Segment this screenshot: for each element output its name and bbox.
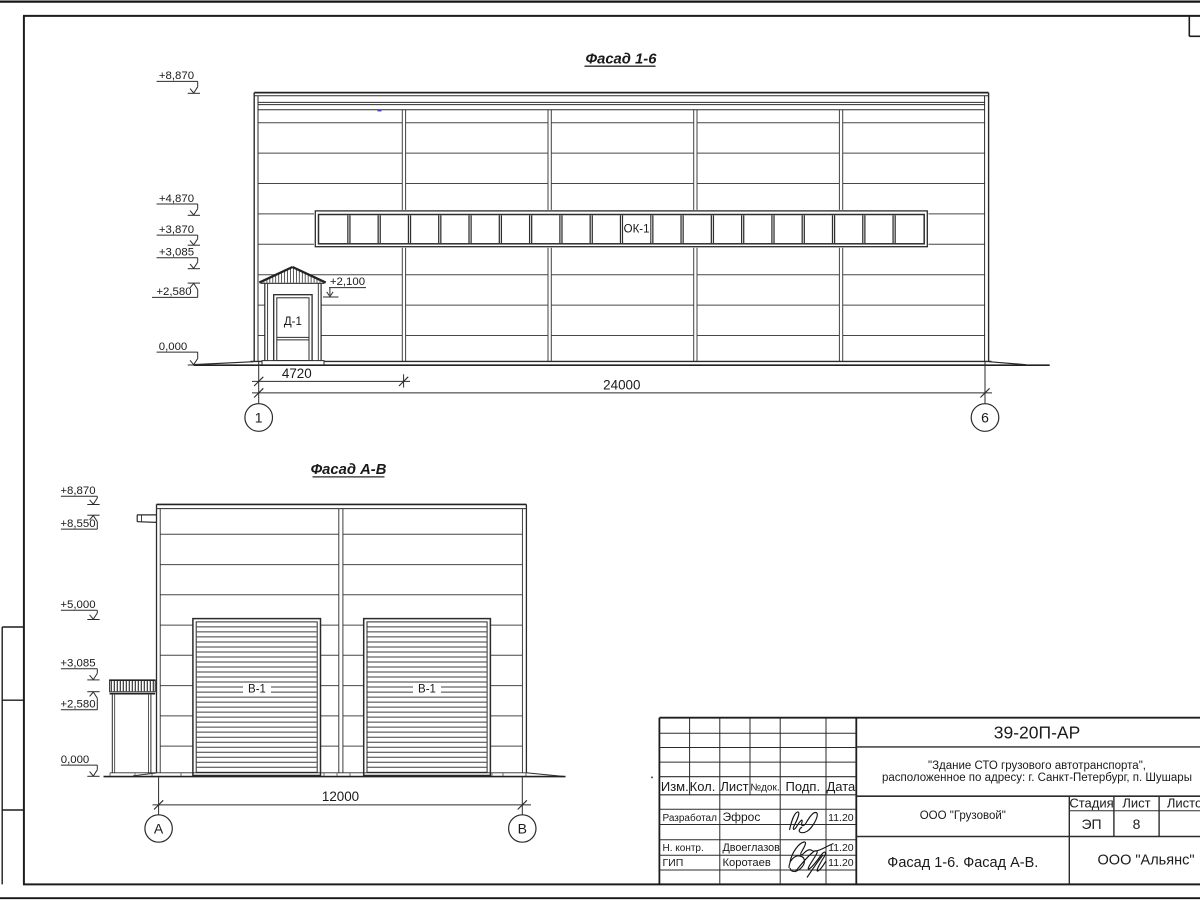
svg-text:12000: 12000 [322, 789, 359, 804]
svg-text:24000: 24000 [603, 378, 640, 393]
svg-text:Лист: Лист [1122, 796, 1150, 811]
svg-text:Эфрос: Эфрос [723, 810, 761, 824]
svg-text:0,000: 0,000 [159, 341, 188, 353]
svg-text:В-1: В-1 [248, 684, 266, 696]
svg-text:6: 6 [981, 410, 989, 426]
svg-text:Фасад 1-6. Фасад А-В.: Фасад 1-6. Фасад А-В. [887, 855, 1038, 871]
svg-text:ООО "Альянс": ООО "Альянс" [1098, 852, 1195, 868]
svg-text:1: 1 [255, 410, 263, 426]
svg-text:Разработал: Разработал [663, 812, 718, 824]
svg-text:+3,870: +3,870 [159, 224, 194, 236]
svg-text:№док.: №док. [750, 782, 779, 793]
svg-text:Кол.: Кол. [690, 779, 716, 794]
svg-text:+8,870: +8,870 [159, 70, 194, 82]
svg-text:ЭП: ЭП [1081, 816, 1101, 832]
svg-text:Подп.: Подп. [786, 779, 821, 794]
svg-text:ОК-1: ОК-1 [624, 223, 650, 235]
svg-text:+8,870: +8,870 [60, 485, 95, 497]
svg-text:В-1: В-1 [418, 684, 436, 696]
svg-text:расположенное по адресу: г. Са: расположенное по адресу: г. Санкт-Петерб… [882, 772, 1192, 784]
svg-text:11.20: 11.20 [828, 857, 854, 869]
svg-text:8: 8 [1133, 816, 1141, 832]
svg-text:"Здание СТО грузового автотран: "Здание СТО грузового автотранспорта", [928, 760, 1146, 772]
svg-text:0,000: 0,000 [61, 754, 90, 766]
svg-text:Листов: Листов [1167, 796, 1200, 811]
svg-text:Двоеглазов: Двоеглазов [723, 842, 781, 854]
svg-text:+5,000: +5,000 [60, 599, 95, 611]
svg-text:Фасад А-В: Фасад А-В [311, 462, 387, 478]
svg-text:Фасад 1-6: Фасад 1-6 [586, 52, 658, 68]
svg-text:ГИП: ГИП [663, 857, 684, 869]
svg-text:Лист: Лист [720, 779, 748, 794]
svg-text:39-20П-АР: 39-20П-АР [994, 723, 1081, 743]
svg-text:Коротаев: Коротаев [723, 857, 771, 869]
svg-text:В: В [518, 821, 527, 837]
svg-text:+4,870: +4,870 [159, 193, 194, 205]
svg-text:+3,085: +3,085 [60, 658, 95, 670]
svg-text:+3,085: +3,085 [159, 247, 194, 259]
svg-text:+2,580: +2,580 [156, 286, 191, 298]
svg-text:Дата: Дата [827, 779, 857, 794]
svg-text:Изм.: Изм. [661, 779, 689, 794]
svg-text:+2,100: +2,100 [330, 276, 365, 288]
svg-text:Д-1: Д-1 [284, 316, 302, 328]
svg-text:Стадия: Стадия [1069, 796, 1113, 811]
svg-text:11.20: 11.20 [828, 812, 854, 824]
svg-text:ООО "Грузовой": ООО "Грузовой" [920, 810, 1006, 822]
svg-text:4720: 4720 [282, 366, 312, 381]
svg-text:А: А [154, 821, 164, 837]
svg-text:+2,580: +2,580 [60, 699, 95, 711]
svg-text:Н. контр.: Н. контр. [663, 843, 704, 854]
